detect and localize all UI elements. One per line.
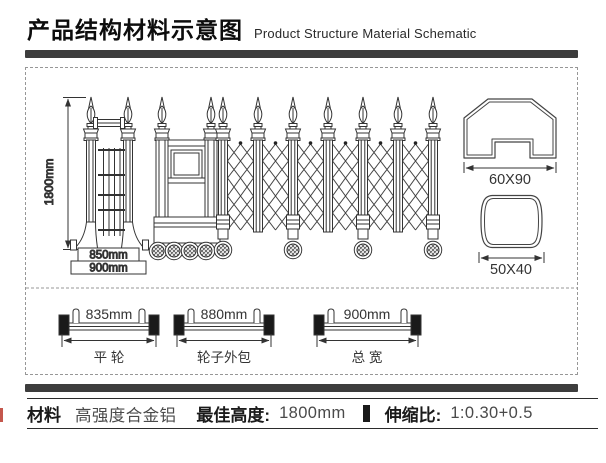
axle-wheel-cover-drawing: 880mm 轮子外包	[174, 306, 274, 365]
height-dimension: 1800mm	[42, 98, 86, 250]
footer-top-bar	[25, 384, 578, 392]
footer-red-bullet	[0, 408, 3, 422]
profile-cross-label: 50X40	[490, 262, 532, 278]
base-inner-width-label: 850mm	[89, 250, 127, 262]
gate-schematic-svg: 1800mm 8	[26, 68, 577, 374]
page-title: 产品结构材料示意图 Product Structure Material Sch…	[27, 11, 477, 45]
profile-50x40-drawing: 50X40	[479, 196, 544, 279]
axle-flat-wheel-drawing: 835mm 平 轮	[59, 306, 159, 365]
material-value: 高强度合金铝	[75, 402, 176, 426]
material-label: 材料	[27, 401, 61, 426]
best-height-value: 1800mm	[279, 404, 346, 423]
axle3-dimension: 900mm	[344, 306, 391, 322]
axle2-label: 轮子外包	[197, 350, 251, 365]
profile-main-label: 60X90	[489, 172, 531, 188]
spec-footer-bar: 材料 高强度合金铝 最佳高度: 1800mm 伸缩比: 1:0.30+0.5	[27, 398, 598, 429]
profile-60x90-drawing: 60X90	[464, 99, 556, 188]
axle2-dimension: 880mm	[201, 306, 248, 322]
best-height-label: 最佳高度:	[196, 401, 270, 426]
base-outer-width-label: 900mm	[89, 263, 127, 275]
inner-ladder-frame	[98, 148, 125, 236]
ratio-value: 1:0.30+0.5	[450, 404, 532, 423]
drive-unit-drawing	[149, 97, 220, 260]
ratio-label: 伸缩比:	[385, 401, 442, 426]
footer-divider-block	[363, 405, 370, 422]
axle1-label: 平 轮	[94, 350, 125, 365]
axle1-dimension: 835mm	[86, 306, 133, 322]
product-schematic-page: { "header": { "title_cn": "产品结构材料示意图", "…	[0, 0, 606, 463]
gate-height-label: 1800mm	[42, 159, 56, 206]
page-title-chinese: 产品结构材料示意图	[27, 11, 243, 45]
axle3-label: 总 宽	[352, 349, 383, 365]
gate-end-unit-drawing: 1800mm 8	[42, 97, 149, 275]
title-underline-bar	[25, 50, 578, 58]
scissor-section-drawing	[214, 97, 442, 259]
page-title-english: Product Structure Material Schematic	[254, 26, 477, 41]
axle-total-width-drawing: 900mm 总 宽	[314, 306, 421, 365]
schematic-drawing-area: 1800mm 8	[25, 67, 578, 375]
